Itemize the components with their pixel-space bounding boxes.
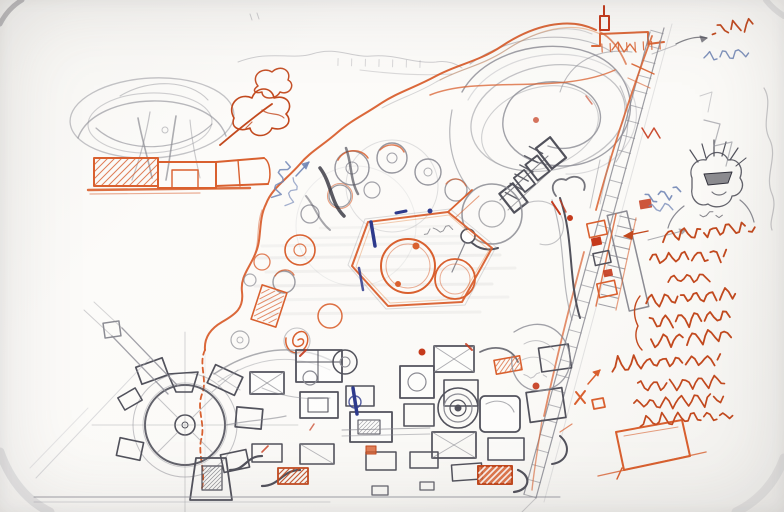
sketch-canvas	[0, 0, 784, 512]
figure-doodle	[648, 88, 774, 240]
canopy-elevation-sketch	[68, 74, 270, 194]
top-right-note	[652, 17, 754, 62]
skyline-sketch	[238, 13, 462, 75]
tree-scribbles	[220, 68, 292, 145]
sketch-page: 城市界面20m 入口休闲文娱馆：1000m²（2层）剧场馆（观演200人）300…	[0, 0, 784, 512]
building-blocks	[230, 344, 572, 495]
central-plaza	[348, 190, 496, 309]
entrance-sign	[560, 370, 706, 479]
orange-notes-block-2	[611, 349, 733, 427]
